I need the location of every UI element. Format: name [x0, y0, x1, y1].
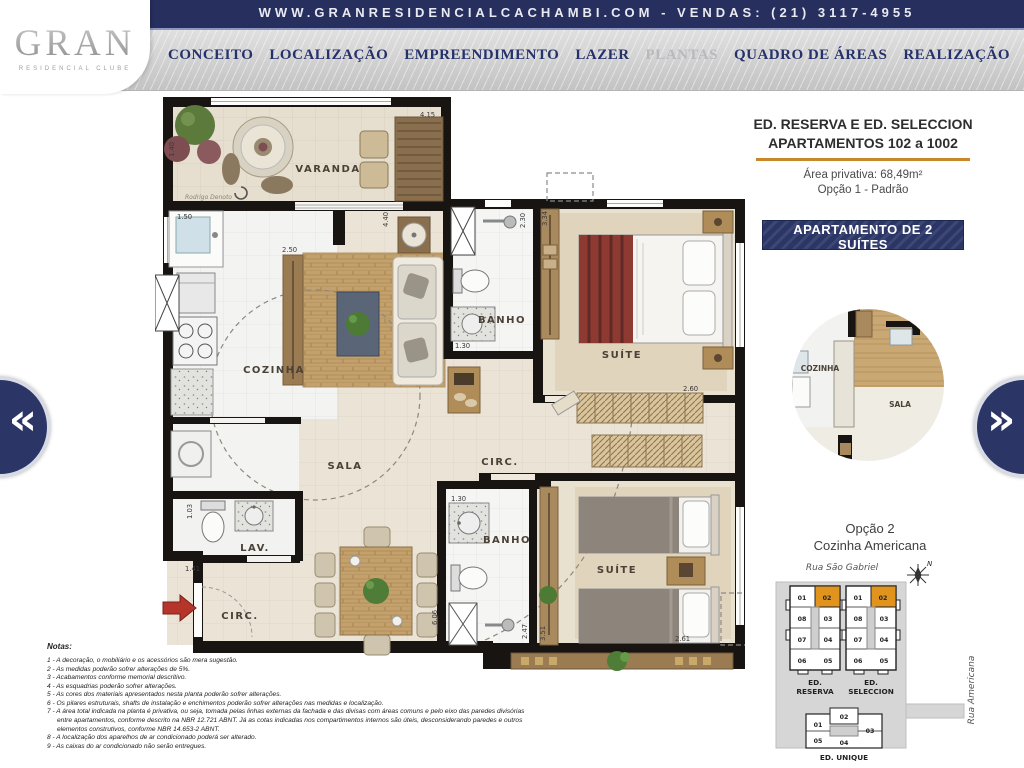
svg-text:05: 05 [814, 738, 823, 745]
nav-item-realizacao[interactable]: REALIZAÇÃO [903, 47, 1010, 64]
svg-text:03: 03 [880, 616, 889, 623]
svg-text:ED.: ED. [864, 678, 878, 687]
option2-caption-line1: Opção 2 [778, 520, 962, 537]
svg-text:01: 01 [854, 595, 863, 602]
svg-text:1.41: 1.41 [185, 565, 200, 573]
svg-text:06: 06 [798, 658, 807, 665]
svg-text:04: 04 [824, 637, 833, 644]
notes-block: Notas: 1 - A decoração, o mobiliário e o… [47, 642, 525, 751]
option2-inset[interactable]: COZINHA SALA [790, 307, 946, 463]
label-lav: LAV. [240, 543, 270, 554]
svg-text:06: 06 [854, 658, 863, 665]
chevron-left-icon: « [9, 394, 37, 445]
apartment-type-button[interactable]: APARTAMENTO DE 2 SUÍTES [762, 220, 964, 250]
label-suite2: SUÍTE [597, 563, 637, 576]
note-item: 9 - As caixas do ar condicionado não ser… [47, 743, 525, 752]
plan-info-panel: ED. RESERVA E ED. SELECCION APARTAMENTOS… [748, 116, 978, 196]
chevron-right-icon: » [987, 394, 1015, 445]
site-plan-drawing: Rua São Gabriel N 01 02 08 [768, 556, 1008, 768]
apartments-range: APARTAMENTOS 102 a 1002 [748, 135, 978, 151]
note-item: 4 - As esquadrias poderão sofrer alteraç… [47, 683, 525, 692]
svg-text:02: 02 [840, 714, 849, 721]
svg-text:1.40: 1.40 [168, 142, 176, 157]
artist-signature: Rodrigo Denoto [185, 194, 232, 201]
svg-text:08: 08 [854, 616, 863, 623]
street-label-right: Rua Americana [967, 656, 977, 725]
svg-text:03: 03 [866, 728, 875, 735]
svg-text:SELECCION: SELECCION [848, 687, 894, 696]
building-unique: 01 02 03 05 04 ED. UNIQUE [806, 708, 882, 762]
svg-text:3.34: 3.34 [541, 211, 549, 226]
nav-item-lazer[interactable]: LAZER [575, 47, 629, 64]
nav-item-conceito[interactable]: CONCEITO [168, 47, 253, 64]
svg-text:04: 04 [840, 740, 849, 747]
private-area: Área privativa: 68,49m² [748, 169, 978, 181]
svg-text:1.50: 1.50 [177, 213, 192, 221]
option-label: Opção 1 - Padrão [748, 184, 978, 196]
page: WWW.GRANRESIDENCIALCACHAMBI.COM - VENDAS… [0, 0, 1024, 768]
svg-text:ED.: ED. [808, 678, 822, 687]
label-circ1: CIRC. [481, 457, 518, 468]
note-item: 6 - Os pilares estruturais, shafts de in… [47, 700, 525, 709]
svg-text:04: 04 [880, 637, 889, 644]
svg-text:01: 01 [814, 722, 823, 729]
logo-name: GRAN [0, 22, 150, 65]
svg-text:RESERVA: RESERVA [796, 687, 834, 696]
gold-divider [756, 158, 970, 161]
option2-mini-plan: COZINHA SALA [790, 307, 946, 463]
notes-list: 1 - A decoração, o mobiliário e os acess… [47, 657, 525, 751]
compass-icon [907, 564, 929, 586]
svg-text:02: 02 [823, 595, 832, 602]
svg-text:08: 08 [798, 616, 807, 623]
note-item: 8 - A localização dos aparelhos de ar co… [47, 734, 525, 743]
svg-text:05: 05 [824, 658, 833, 665]
svg-text:02: 02 [879, 595, 888, 602]
inset-label-sala: SALA [889, 400, 911, 409]
svg-text:2.30: 2.30 [519, 213, 527, 228]
planter-box [511, 651, 733, 671]
label-suite1: SUÍTE [602, 348, 642, 361]
top-contact-bar: WWW.GRANRESIDENCIALCACHAMBI.COM - VENDAS… [0, 0, 1024, 30]
nav-item-plantas-current[interactable]: PLANTAS [646, 47, 718, 64]
svg-text:6.06: 6.06 [431, 610, 439, 625]
main-header: CONCEITO LOCALIZAÇÃO EMPREENDIMENTO LAZE… [0, 30, 1024, 91]
nav-item-quadro-de-areas[interactable]: QUADRO DE ÁREAS [734, 47, 887, 64]
label-sala: SALA [327, 461, 362, 472]
building-title: ED. RESERVA E ED. SELECCION [748, 116, 978, 132]
label-banho2: BANHO [483, 535, 531, 546]
next-plan-button[interactable]: » [974, 377, 1024, 477]
nav-item-empreendimento[interactable]: EMPREENDIMENTO [404, 47, 559, 64]
note-item: 5 - As cores dos materiais apresentados … [47, 691, 525, 700]
floor-plan: Rodrigo Denoto [155, 95, 745, 680]
svg-text:07: 07 [854, 637, 863, 644]
option2-caption: Opção 2 Cozinha Americana [778, 520, 962, 554]
svg-text:1.30: 1.30 [455, 342, 470, 350]
svg-text:2.61: 2.61 [675, 635, 690, 643]
note-item: 2 - As medidas poderão sofrer alterações… [47, 666, 525, 675]
site-url-and-phone: WWW.GRANRESIDENCIALCACHAMBI.COM - VENDAS… [150, 5, 1024, 20]
site-plan: Rua São Gabriel N 01 02 08 [768, 556, 1008, 768]
notes-heading: Notas: [47, 642, 525, 651]
svg-text:4.40: 4.40 [382, 212, 390, 227]
option2-caption-line2: Cozinha Americana [778, 537, 962, 554]
compass-n: N [927, 560, 933, 568]
previous-plan-button[interactable]: « [0, 377, 50, 477]
note-item: 1 - A decoração, o mobiliário e os acess… [47, 657, 525, 666]
inset-label-cozinha: COZINHA [801, 364, 840, 373]
svg-text:07: 07 [798, 637, 807, 644]
label-cozinha: COZINHA [243, 365, 305, 376]
svg-text:1.03: 1.03 [186, 504, 194, 519]
svg-text:05: 05 [880, 658, 889, 665]
svg-text:2.47: 2.47 [521, 624, 529, 639]
svg-text:1.30: 1.30 [451, 495, 466, 503]
svg-text:01: 01 [798, 595, 807, 602]
label-banho1: BANHO [478, 315, 526, 326]
note-item: 7 - A área total indicada na planta é pr… [47, 708, 525, 734]
logo[interactable]: GRAN RESIDENCIAL CLUBE [0, 0, 150, 94]
svg-text:03: 03 [824, 616, 833, 623]
svg-text:4.15: 4.15 [420, 111, 435, 119]
main-nav: CONCEITO LOCALIZAÇÃO EMPREENDIMENTO LAZE… [168, 47, 1010, 64]
svg-text:3.51: 3.51 [539, 626, 547, 641]
street-label-top: Rua São Gabriel [806, 563, 879, 573]
note-item: 3 - Acabamentos conforme memorial descri… [47, 674, 525, 683]
floor-plan-drawing: Rodrigo Denoto [155, 95, 745, 680]
nav-item-localizacao[interactable]: LOCALIZAÇÃO [269, 47, 388, 64]
label-varanda: VARANDA [295, 164, 360, 175]
label-circ2: CIRC. [221, 611, 258, 622]
svg-text:2.50: 2.50 [282, 246, 297, 254]
logo-subtitle: RESIDENCIAL CLUBE [0, 66, 150, 72]
svg-text:2.60: 2.60 [683, 385, 698, 393]
svg-text:ED. UNIQUE: ED. UNIQUE [820, 753, 868, 762]
